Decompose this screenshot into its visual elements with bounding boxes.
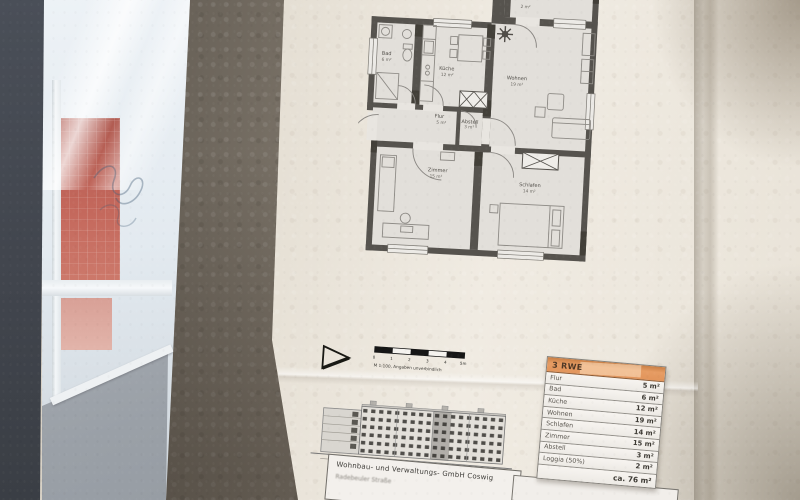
elevation-highlight [430,411,451,460]
svg-text:3: 3 [426,358,429,363]
svg-text:3 m²: 3 m² [464,124,475,131]
svg-text:4: 4 [444,359,447,364]
room-label-zimmer: Zimmer [428,167,449,174]
svg-text:5m: 5m [460,361,467,366]
floor-plan: Bad 6 m² Küche 12 m² Flur 5 m² Abstell 3… [351,0,612,278]
svg-text:2: 2 [408,357,411,362]
svg-text:0: 0 [373,354,376,359]
svg-text:2 m²: 2 m² [520,4,531,11]
total-area: ca. 76 m² [613,473,652,485]
room-label-flur: Flur [434,114,445,121]
plan-footprint [360,0,600,262]
svg-text:14 m²: 14 m² [523,188,536,195]
svg-text:15 m²: 15 m² [429,173,442,180]
svg-text:1: 1 [390,356,393,361]
svg-text:6 m²: 6 m² [381,57,392,64]
area-table: 3 RWE Flur5 m² Bad6 m² Küche12 m² Wohnen… [536,356,666,489]
svg-text:12 m²: 12 m² [441,72,454,79]
tape-highlight [580,362,642,378]
room-label-bad: Bad [382,51,392,57]
window-frame-horizontal [42,280,172,296]
scale-caption: M 1:100, Angaben unverbindlich [373,363,442,373]
room-label-wohnen: Wohnen [507,75,528,82]
photo-floorplan-on-wall: Bad 6 m² Küche 12 m² Flur 5 m² Abstell 3… [0,0,800,500]
svg-text:19 m²: 19 m² [510,81,523,88]
room-label-schlafen: Schlafen [519,182,541,189]
svg-text:5 m²: 5 m² [436,120,447,127]
apartment-type-label: 3 RWE [552,360,583,372]
north-arrow-icon [317,343,355,375]
pink-building-outside [60,298,112,350]
glass-scribble [76,148,160,240]
room-label-kueche: Küche [439,66,454,73]
